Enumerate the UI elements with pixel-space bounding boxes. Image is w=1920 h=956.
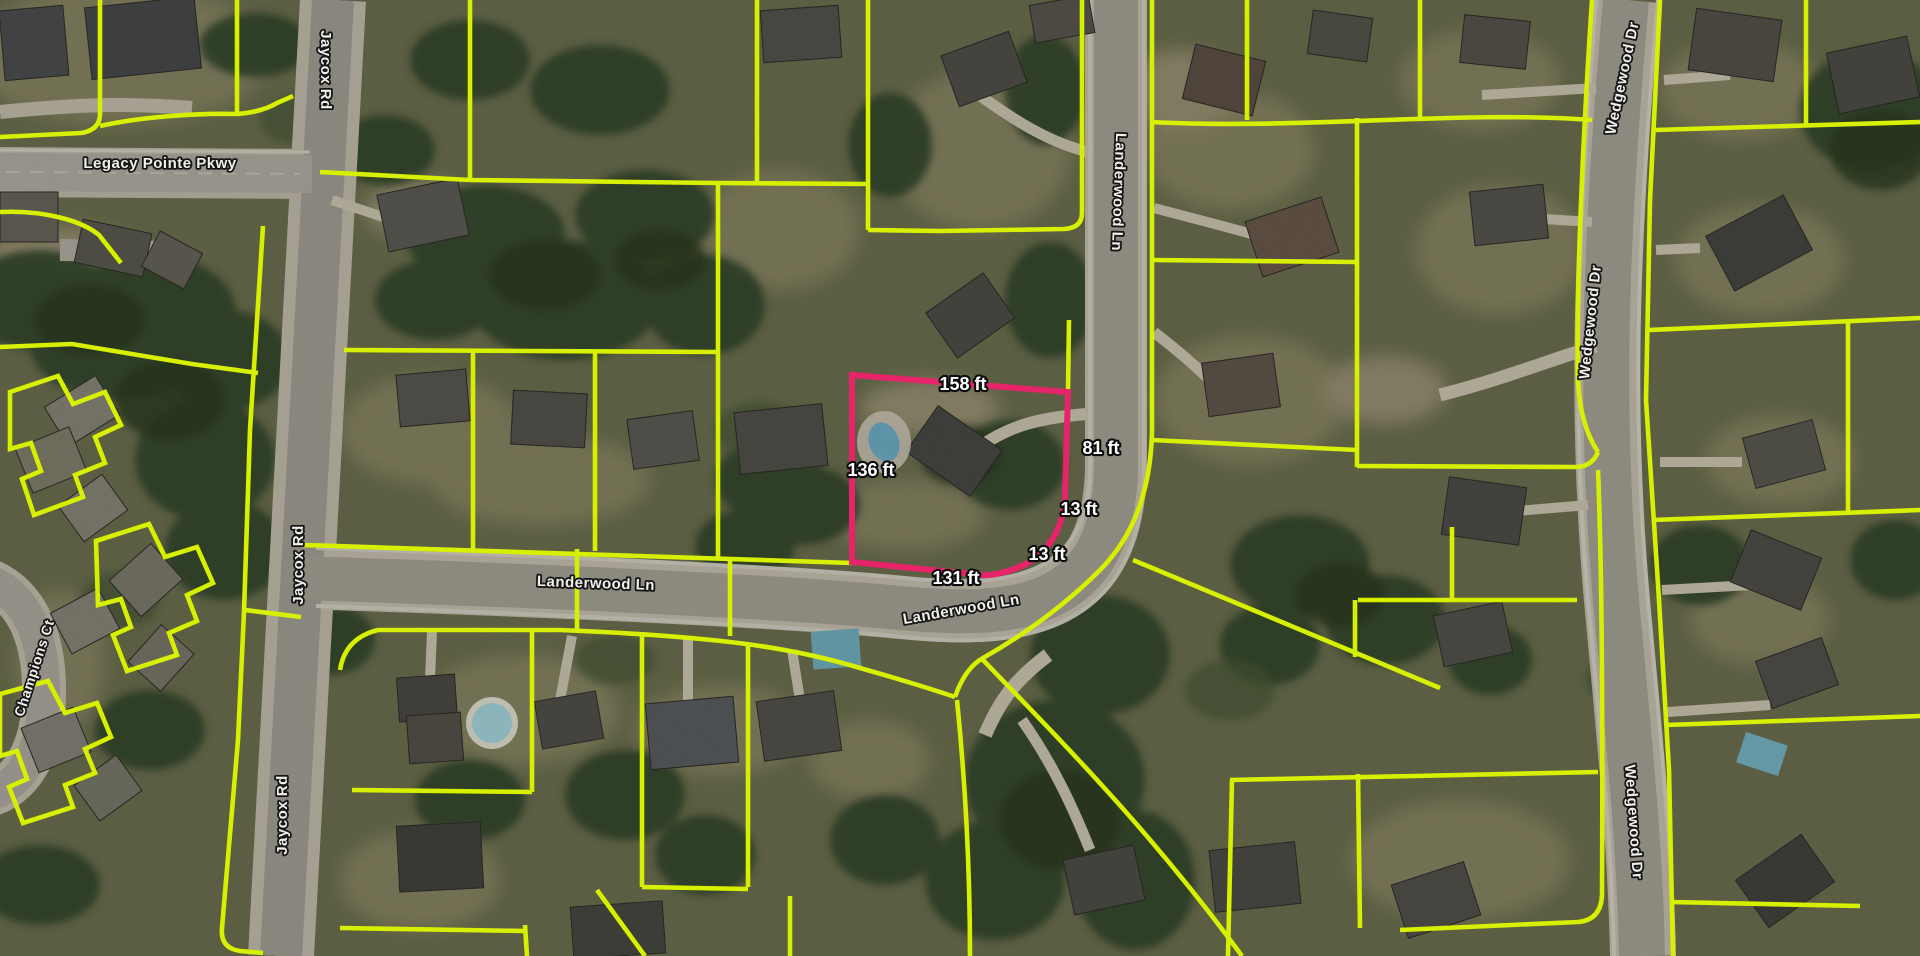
dimension-label-top: 158 ft bbox=[939, 374, 986, 394]
street-label-jaycox-rd-top: Jaycox Rd bbox=[317, 30, 334, 110]
dimension-label-bottom: 131 ft bbox=[932, 568, 979, 588]
dimension-label-right: 81 ft bbox=[1082, 438, 1119, 458]
street-label-legacy-pointe-pkwy: Legacy Pointe Pkwy bbox=[83, 155, 236, 172]
street-label-jaycox-rd-bottom: Jaycox Rd bbox=[274, 775, 291, 855]
aerial-map-canvas[interactable]: Legacy Pointe Pkwy Jaycox Rd Jaycox Rd J… bbox=[0, 0, 1920, 956]
dimension-label-corner-upper: 13 ft bbox=[1060, 499, 1097, 519]
gis-parcel-map-view: Legacy Pointe Pkwy Jaycox Rd Jaycox Rd J… bbox=[0, 0, 1920, 956]
dimension-label-left: 136 ft bbox=[847, 460, 894, 480]
street-label-jaycox-rd-middle: Jaycox Rd bbox=[290, 525, 307, 605]
dimension-label-corner-lower: 13 ft bbox=[1028, 544, 1065, 564]
